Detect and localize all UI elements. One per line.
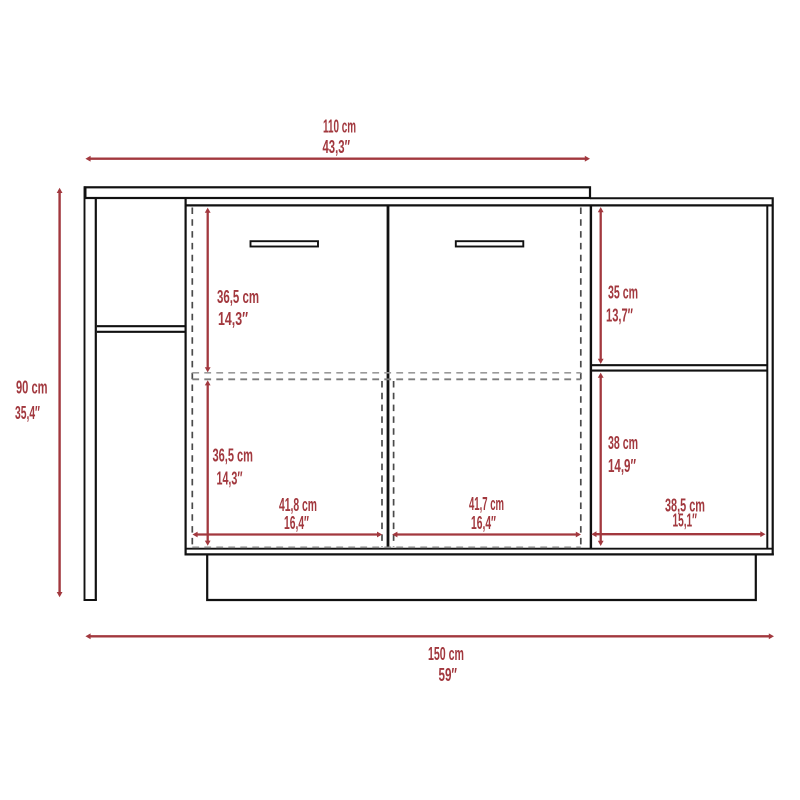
svg-text:150 cm: 150 cm bbox=[428, 644, 464, 664]
svg-text:35 cm: 35 cm bbox=[608, 283, 638, 303]
svg-text:43,3″: 43,3″ bbox=[323, 137, 351, 157]
svg-text:13,7″: 13,7″ bbox=[606, 306, 633, 326]
svg-text:41,8 cm: 41,8 cm bbox=[279, 495, 317, 515]
svg-text:14,3″: 14,3″ bbox=[218, 309, 248, 329]
svg-text:15,1″: 15,1″ bbox=[673, 511, 698, 531]
svg-text:36,5 cm: 36,5 cm bbox=[213, 446, 254, 466]
svg-text:90 cm: 90 cm bbox=[16, 378, 48, 398]
svg-text:41,7 cm: 41,7 cm bbox=[469, 494, 504, 514]
svg-text:36,5 cm: 36,5 cm bbox=[217, 287, 259, 307]
svg-text:16,4″: 16,4″ bbox=[471, 513, 496, 533]
svg-text:35,4″: 35,4″ bbox=[15, 403, 40, 423]
svg-text:16,4″: 16,4″ bbox=[284, 513, 309, 533]
svg-text:38 cm: 38 cm bbox=[608, 433, 638, 453]
svg-text:110 cm: 110 cm bbox=[323, 117, 356, 137]
svg-text:14,9″: 14,9″ bbox=[608, 456, 636, 476]
svg-text:59″: 59″ bbox=[439, 665, 458, 685]
svg-text:14,3″: 14,3″ bbox=[217, 469, 243, 489]
